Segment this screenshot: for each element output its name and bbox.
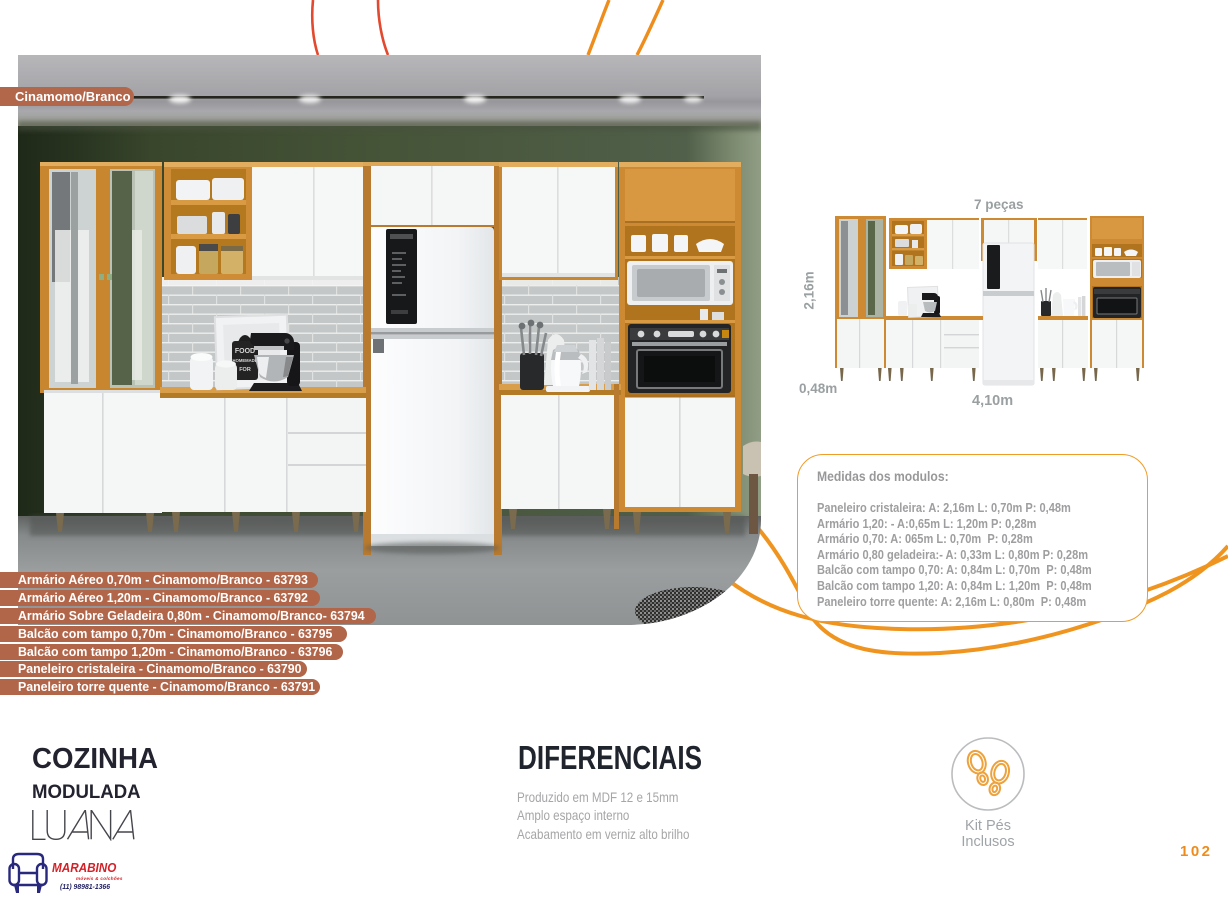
svg-text:FOOD: FOOD [235, 348, 255, 355]
svg-text:HOMEMADE: HOMEMADE [233, 358, 258, 363]
svg-text:FOR: FOR [239, 367, 251, 373]
